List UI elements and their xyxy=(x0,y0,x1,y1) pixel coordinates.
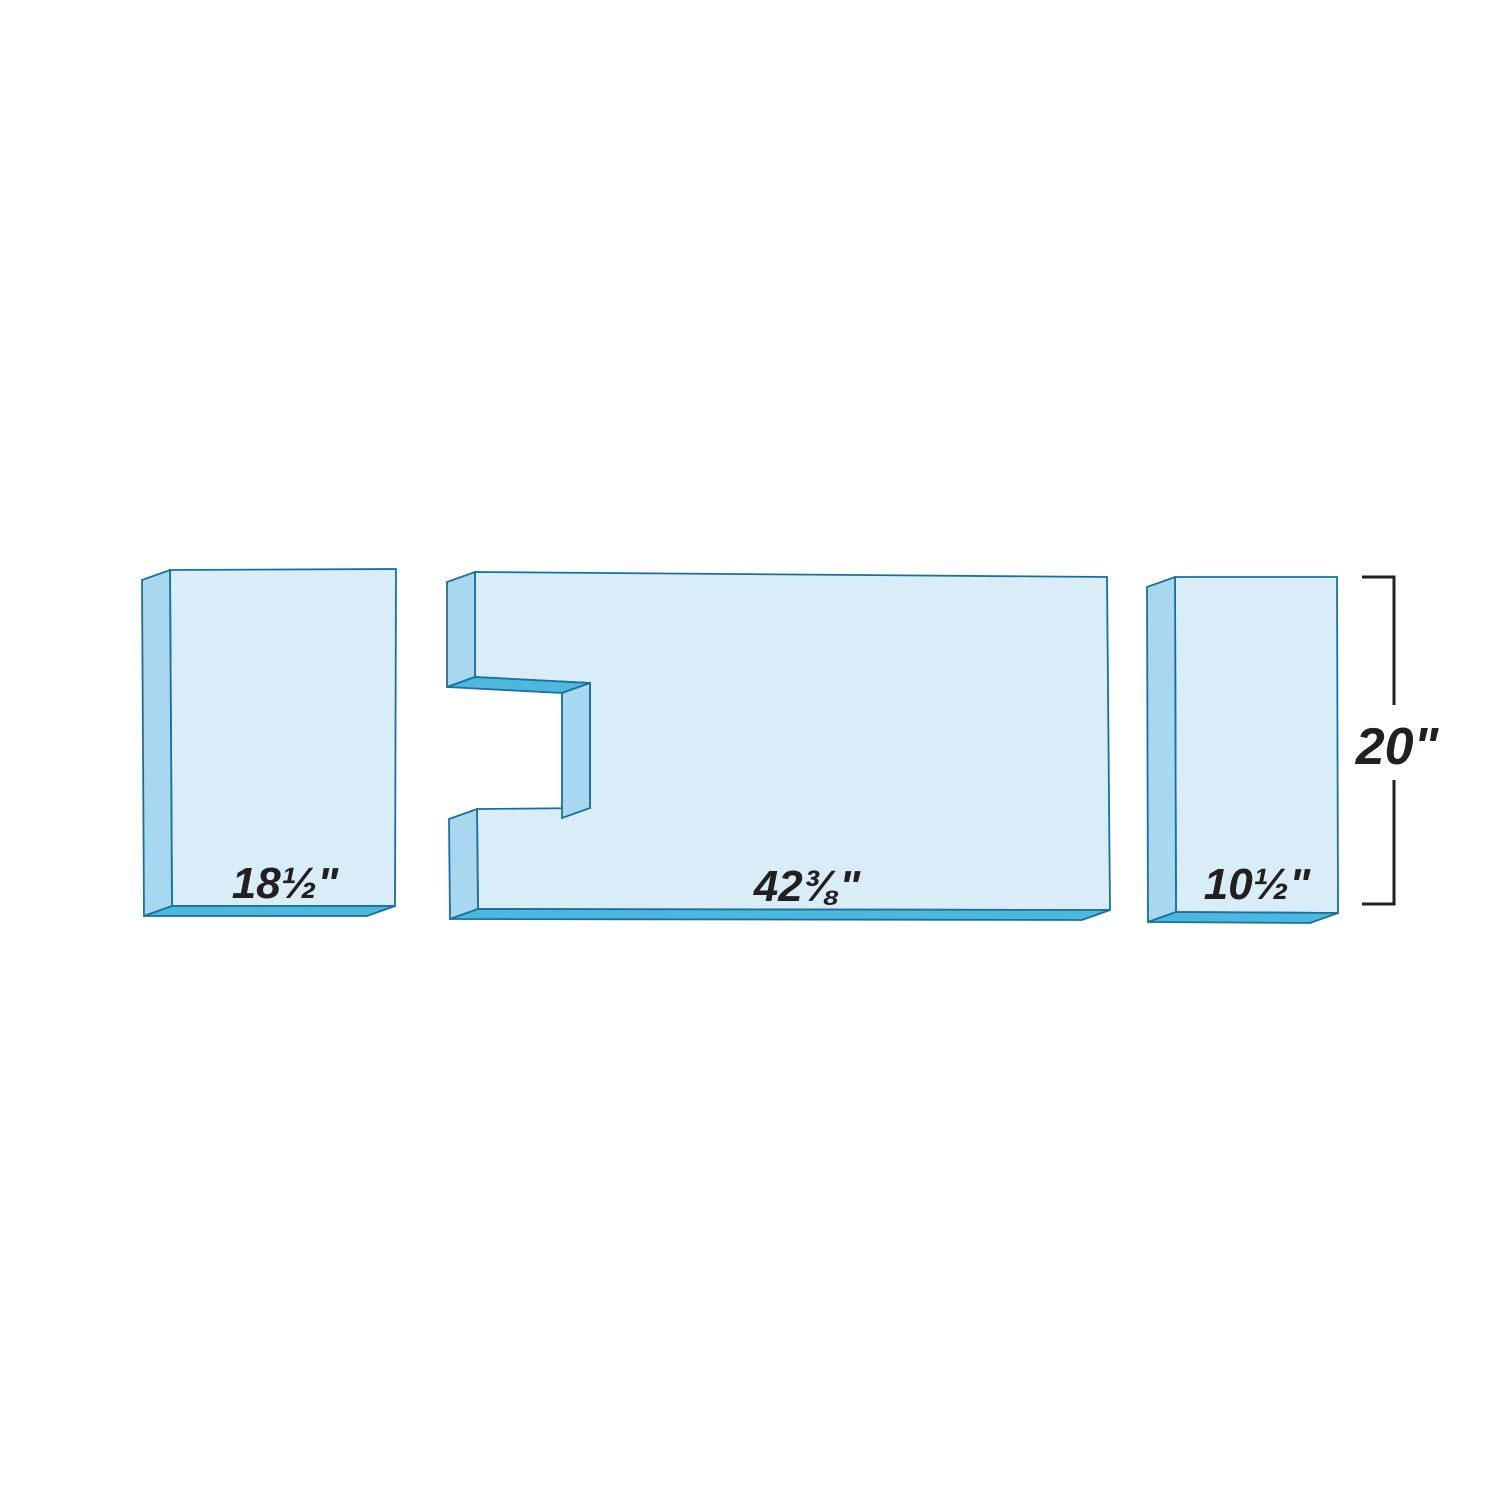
piece-right-bottom-face xyxy=(1148,912,1338,923)
piece-right-side-face xyxy=(1147,577,1176,922)
piece-left-side-face xyxy=(142,570,172,916)
piece-right: 10½" xyxy=(1147,577,1338,923)
piece-center: 42⅜" xyxy=(447,572,1110,920)
piece-center-bottom-tab-side-face xyxy=(449,809,478,919)
piece-right-width-label: 10½" xyxy=(1204,860,1312,909)
diagram-canvas: 18½" 42⅜" 10½" 20" xyxy=(0,0,1500,1500)
piece-center-width-label: 42⅜" xyxy=(753,862,862,911)
height-dimension: 20" xyxy=(1355,577,1440,904)
piece-center-notch-right-wall-face xyxy=(562,683,590,818)
panel-dimensions-diagram: 18½" 42⅜" 10½" 20" xyxy=(0,0,1500,1500)
height-dimension-bracket-bottom xyxy=(1362,780,1394,904)
piece-left: 18½" xyxy=(142,569,396,916)
piece-left-width-label: 18½" xyxy=(232,859,340,908)
piece-center-top-tab-side-face xyxy=(447,572,475,687)
piece-left-front-face xyxy=(170,569,396,906)
height-dimension-label: 20" xyxy=(1355,718,1440,776)
height-dimension-bracket-top xyxy=(1362,577,1394,705)
